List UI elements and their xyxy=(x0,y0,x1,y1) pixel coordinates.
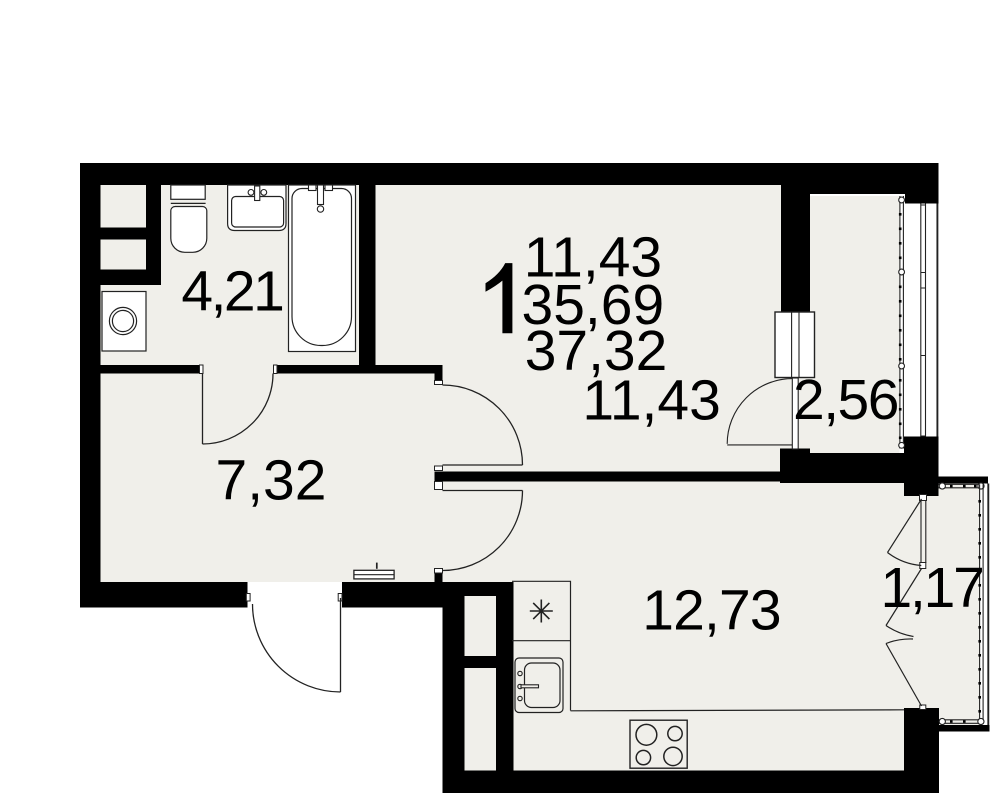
svg-text:12,73: 12,73 xyxy=(642,578,781,642)
svg-text:4,21: 4,21 xyxy=(181,260,282,324)
svg-text:2,56: 2,56 xyxy=(793,368,898,432)
svg-text:11,43: 11,43 xyxy=(582,368,720,432)
svg-text:1,17: 1,17 xyxy=(881,556,983,620)
svg-text:7,32: 7,32 xyxy=(216,448,327,512)
